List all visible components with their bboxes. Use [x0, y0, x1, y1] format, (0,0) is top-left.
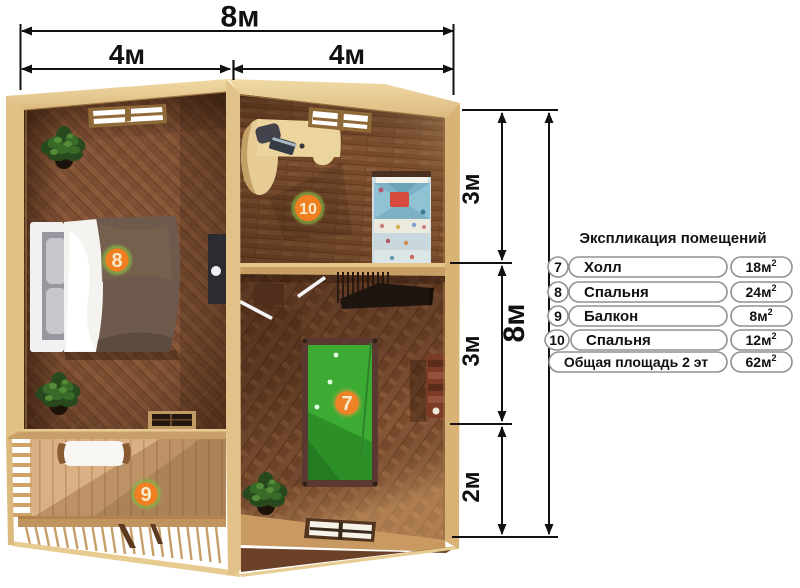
- svg-text:3м: 3м: [458, 335, 485, 366]
- svg-text:9: 9: [140, 484, 151, 506]
- svg-text:7: 7: [341, 393, 352, 415]
- svg-text:Экспликация помещений: Экспликация помещений: [579, 230, 766, 247]
- svg-text:Спальня: Спальня: [586, 332, 651, 349]
- svg-text:8: 8: [111, 250, 122, 272]
- svg-text:2м: 2м: [458, 471, 485, 502]
- svg-text:Общая площадь 2 эт: Общая площадь 2 эт: [564, 354, 708, 370]
- svg-text:3м: 3м: [458, 173, 485, 204]
- svg-text:10: 10: [299, 201, 317, 218]
- svg-text:7: 7: [554, 259, 562, 275]
- svg-text:8м: 8м: [498, 304, 531, 343]
- svg-text:Спальня: Спальня: [584, 284, 649, 301]
- svg-text:9: 9: [554, 308, 562, 324]
- svg-text:Балкон: Балкон: [584, 308, 638, 325]
- svg-text:10: 10: [549, 332, 565, 348]
- svg-text:4м: 4м: [329, 39, 365, 70]
- svg-text:8м: 8м: [221, 1, 260, 34]
- svg-text:Холл: Холл: [584, 259, 622, 276]
- svg-text:8: 8: [554, 284, 562, 300]
- svg-text:4м: 4м: [109, 39, 145, 70]
